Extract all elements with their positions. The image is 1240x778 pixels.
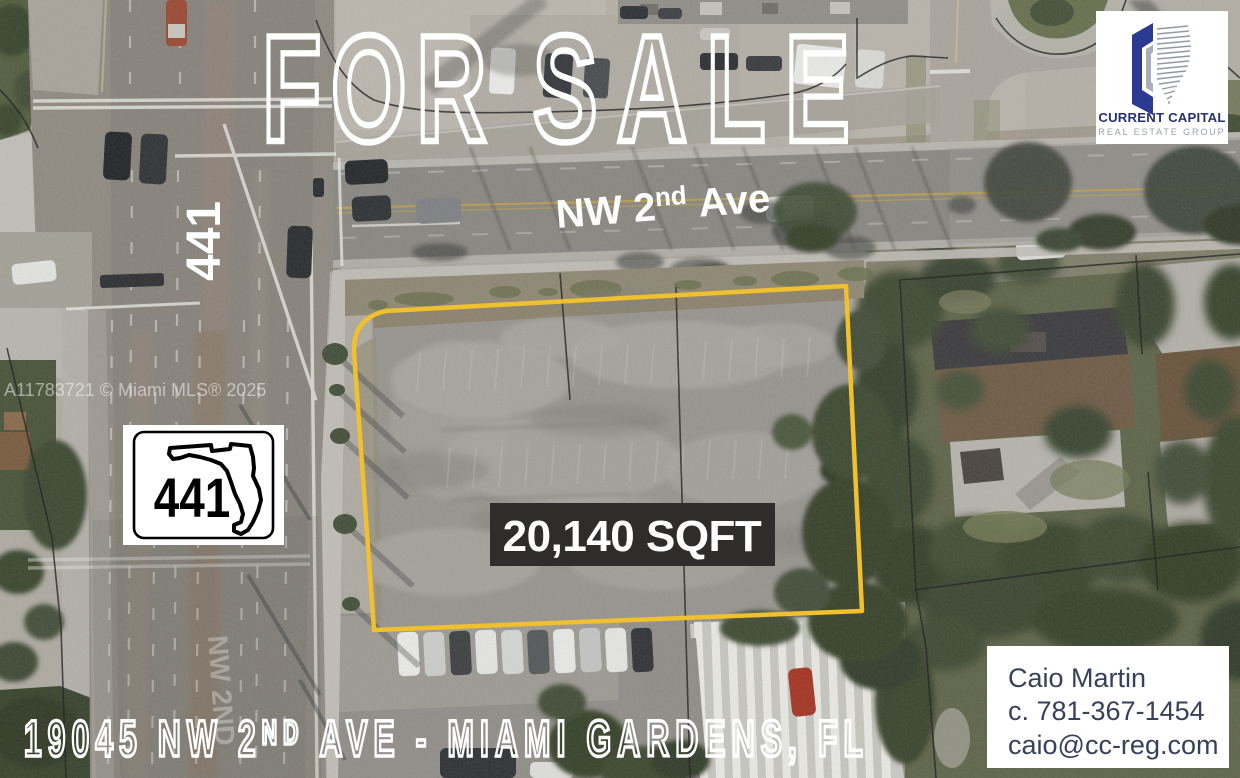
svg-text:REAL ESTATE GROUP: REAL ESTATE GROUP	[1098, 127, 1225, 137]
svg-text:FOR SALE: FOR SALE	[262, 4, 869, 174]
svg-text:Caio Martin: Caio Martin	[1008, 663, 1146, 693]
svg-text:19045 NW 2ND AVE - MIAMI GARDE: 19045 NW 2ND AVE - MIAMI GARDENS, FL	[24, 710, 869, 766]
svg-text:441: 441	[154, 467, 231, 529]
svg-text:441: 441	[178, 201, 231, 281]
svg-text:CURRENT CAPITAL: CURRENT CAPITAL	[1098, 110, 1225, 125]
svg-text:A11783721 © Miami MLS® 2025: A11783721 © Miami MLS® 2025	[4, 380, 266, 400]
svg-text:20,140 SQFT: 20,140 SQFT	[503, 512, 762, 561]
svg-text:caio@cc-reg.com: caio@cc-reg.com	[1008, 730, 1218, 760]
svg-text:c. 781-367-1454: c. 781-367-1454	[1008, 696, 1205, 726]
